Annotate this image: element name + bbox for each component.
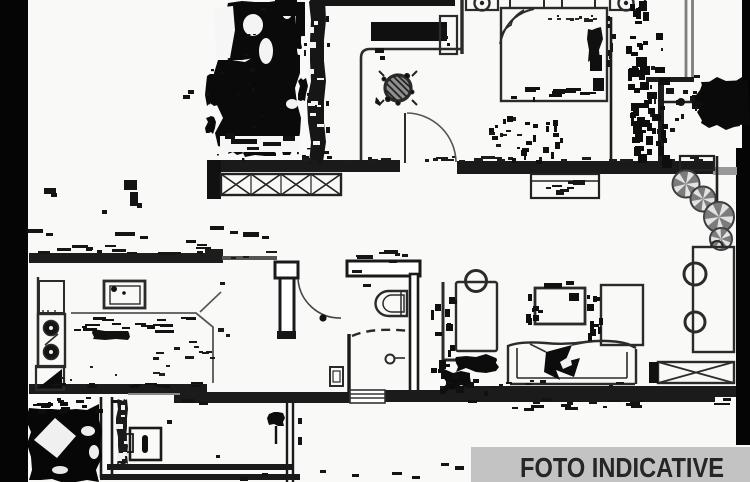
svg-text:FOTO INDICATIVE: FOTO INDICATIVE xyxy=(520,452,724,482)
